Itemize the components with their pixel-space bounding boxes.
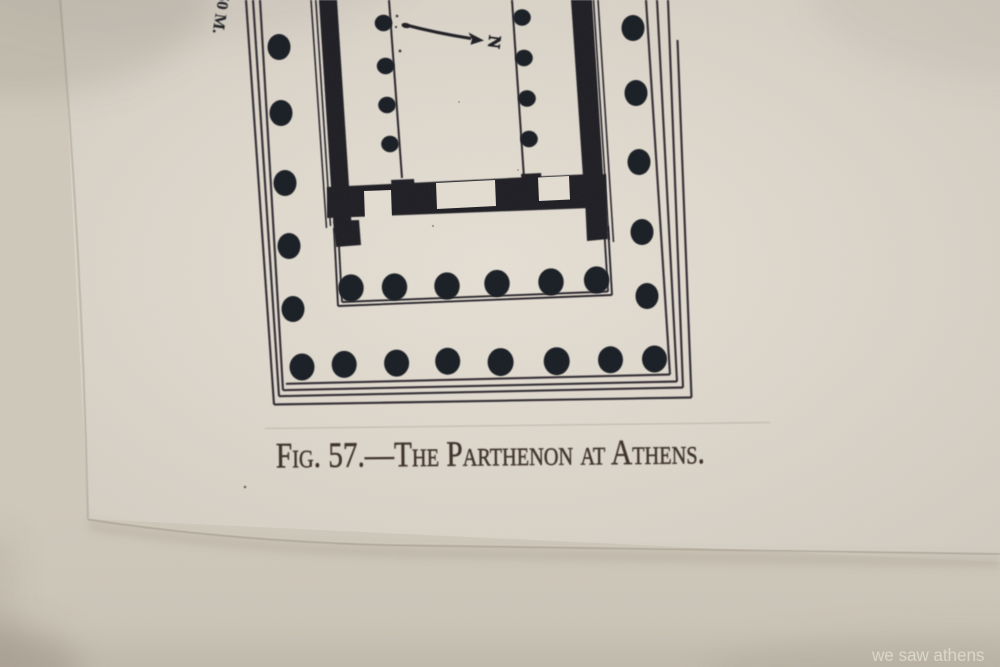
svg-text:we saw athens: we saw athens xyxy=(871,645,984,665)
